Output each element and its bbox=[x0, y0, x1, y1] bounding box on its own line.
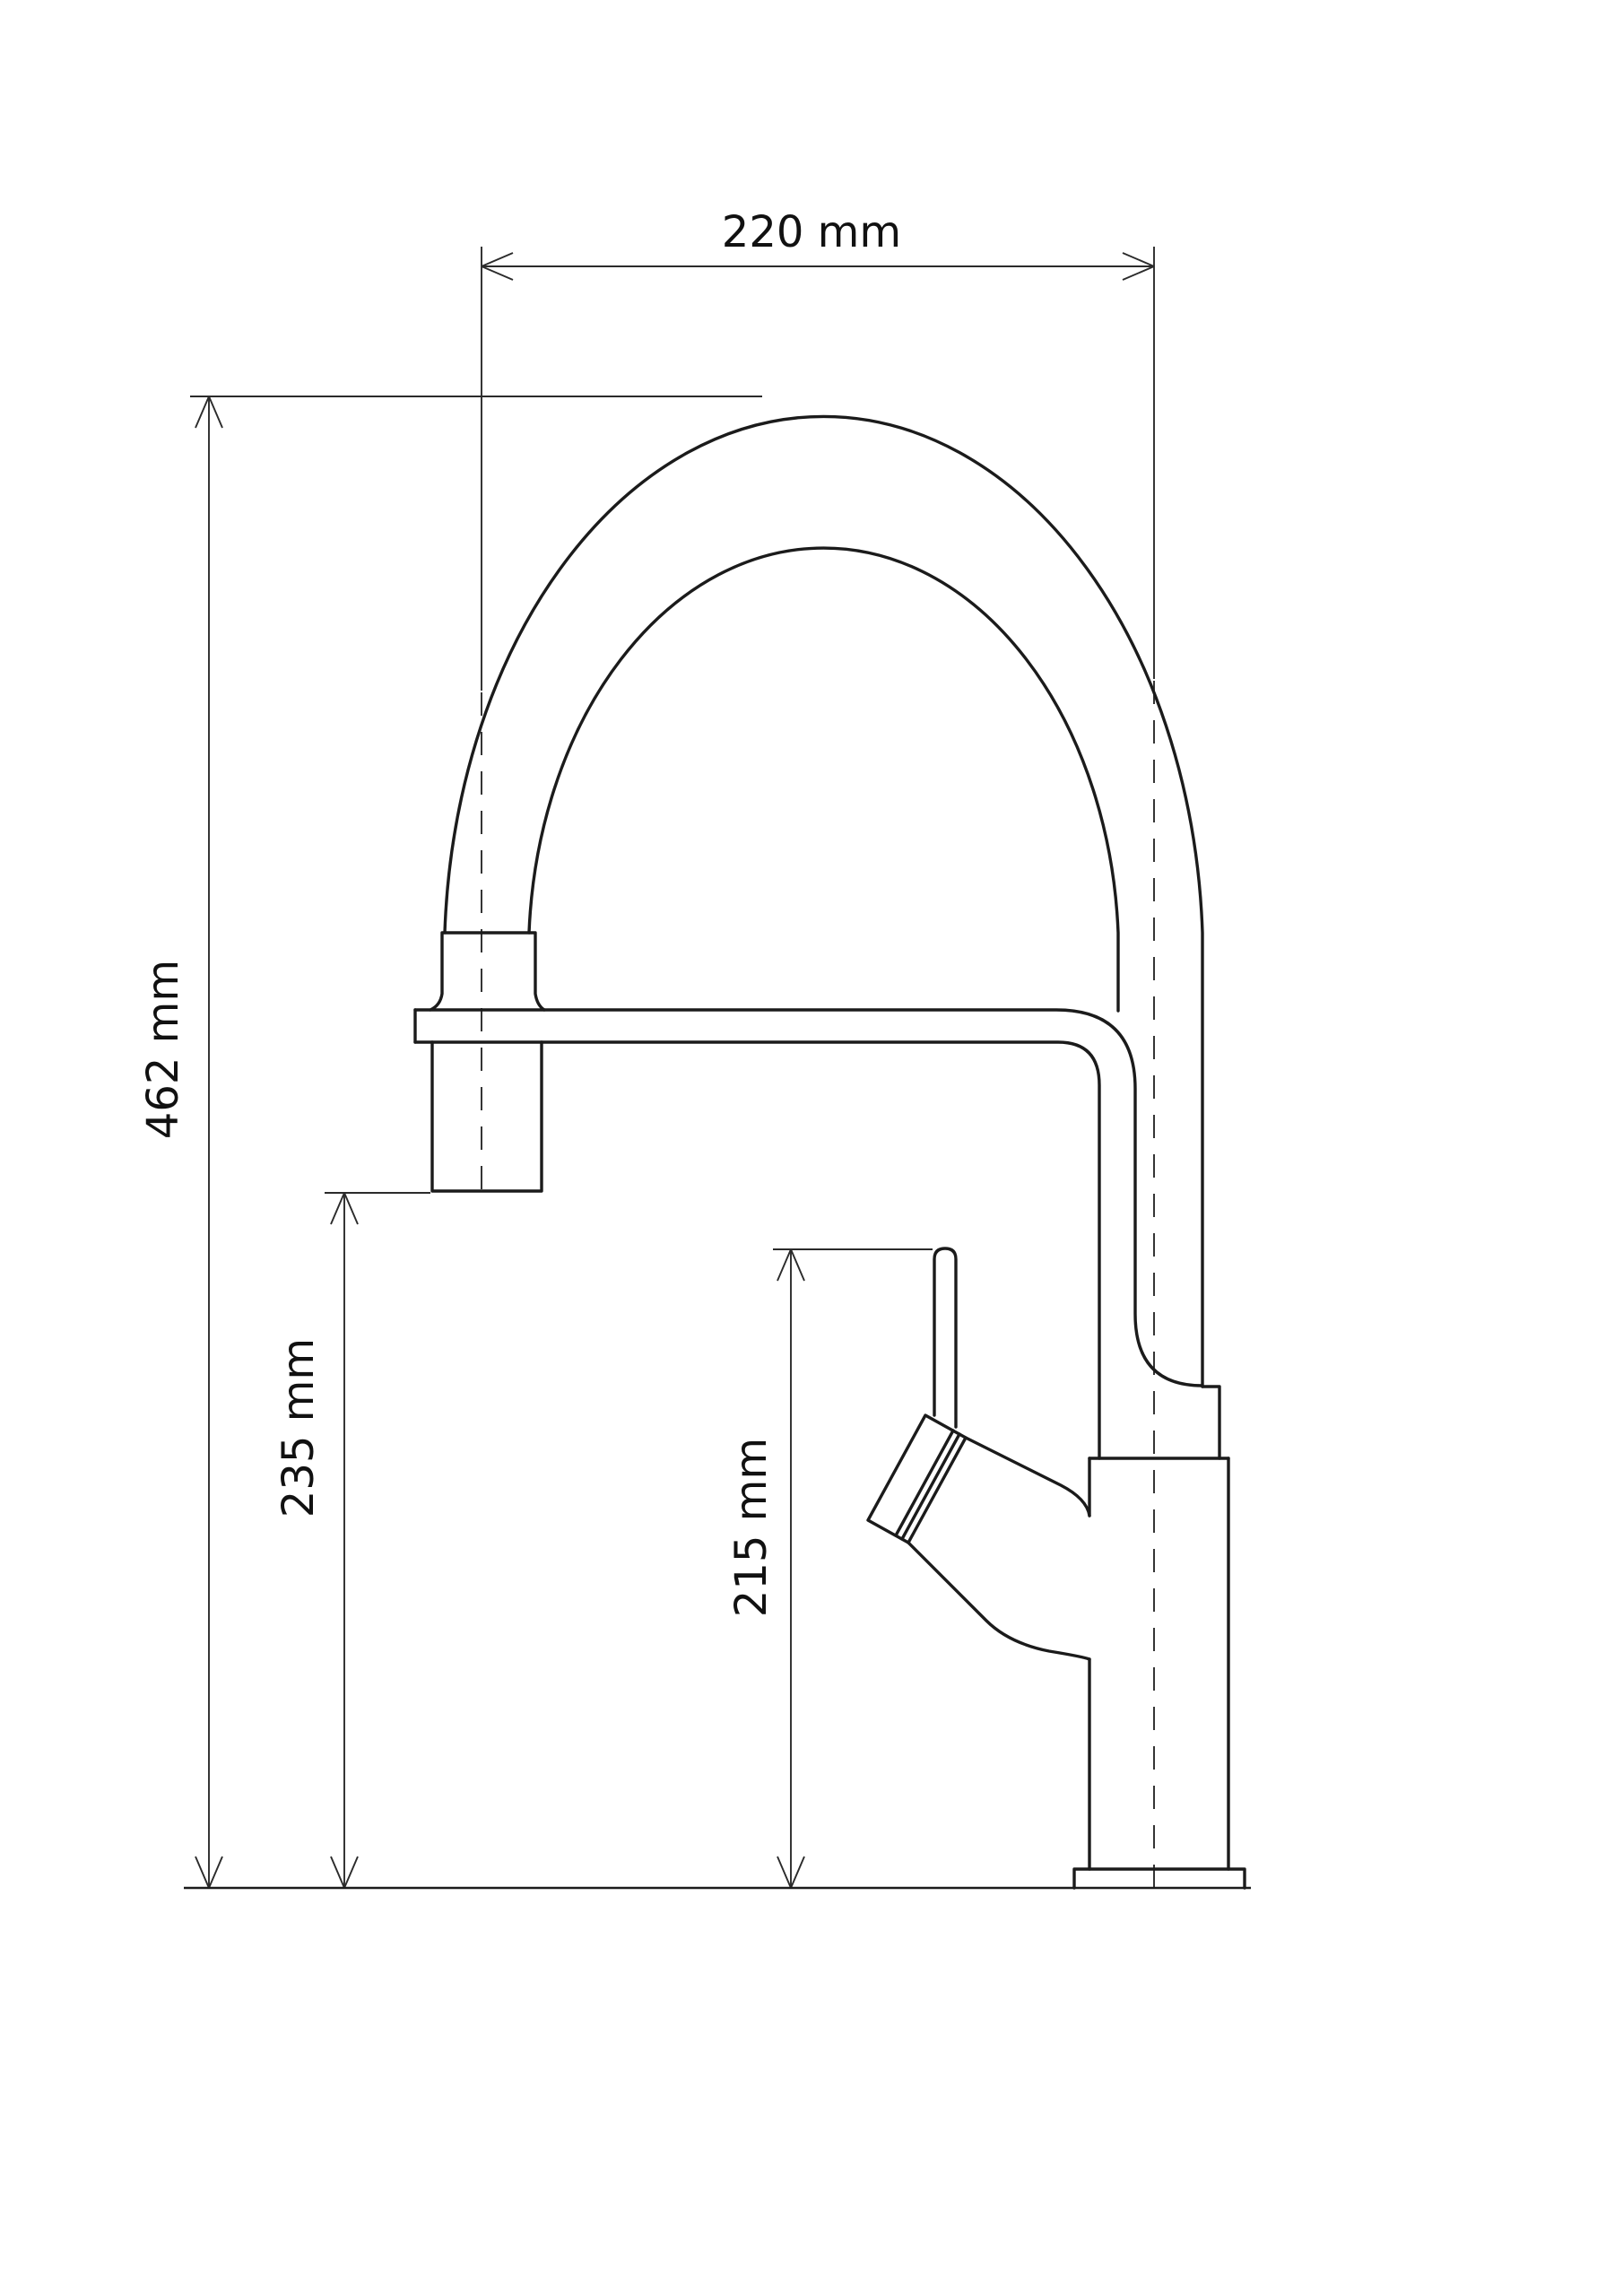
riser-step-ring bbox=[1202, 1387, 1219, 1458]
dimension-462 bbox=[195, 396, 222, 1888]
handle-neck-upper bbox=[966, 1438, 1089, 1516]
spray-arm-top bbox=[415, 1010, 1202, 1386]
hose-arch-inner bbox=[529, 548, 1118, 1011]
hose-arch-outer bbox=[445, 416, 1202, 1387]
faucet-technical-drawing: 220 mm 462 mm 235 mm 215 mm bbox=[0, 0, 1623, 2296]
dimension-215 bbox=[777, 1249, 804, 1888]
dimension-label-outlet-height: 235 mm bbox=[273, 1338, 324, 1518]
dimension-235 bbox=[331, 1193, 358, 1888]
dimension-lines bbox=[195, 253, 1154, 1888]
spray-arm-bottom bbox=[415, 1042, 1099, 1458]
drawing-canvas: 220 mm 462 mm 235 mm 215 mm bbox=[0, 0, 1623, 2296]
dimension-label-total-height: 462 mm bbox=[138, 960, 188, 1139]
handle-cartridge-seam bbox=[896, 1431, 959, 1539]
handle-rod bbox=[934, 1248, 956, 1427]
spout-nozzle bbox=[432, 1042, 542, 1191]
handle-neck-lower bbox=[908, 1543, 1089, 1659]
faucet-outline bbox=[415, 416, 1245, 1888]
spout-collar bbox=[430, 933, 544, 1010]
base-flange bbox=[1074, 1869, 1245, 1888]
dimension-label-width: 220 mm bbox=[722, 207, 901, 257]
dimension-label-handle-height: 215 mm bbox=[726, 1438, 777, 1617]
extension-lines bbox=[190, 247, 1154, 1887]
